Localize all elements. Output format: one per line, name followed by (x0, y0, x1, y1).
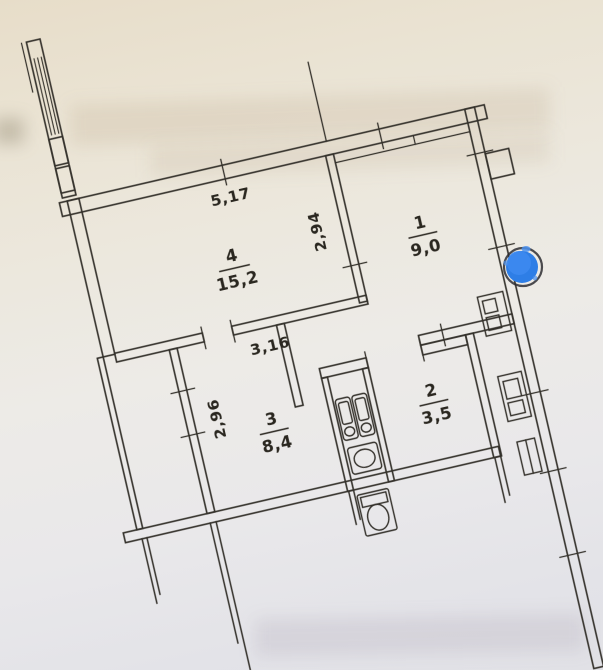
room4-number: 4 (224, 245, 240, 266)
wall-balcony-room3 (169, 348, 215, 513)
wall-pilaster-bump (485, 148, 514, 179)
axis-line-extension (308, 62, 326, 141)
room1-label: 1 9,0 (403, 210, 443, 261)
wall-partition-room4-room1 (326, 154, 368, 303)
wall-niche-left (322, 377, 354, 491)
wall-niche-top (319, 358, 368, 379)
wall-section-top-left (21, 39, 76, 199)
wall-room4-bottom-right (232, 295, 368, 335)
room1-area: 9,0 (409, 235, 443, 260)
marker-speck-top (522, 246, 531, 252)
wall-niche-right (362, 368, 394, 482)
room1-ledge-joint (413, 136, 415, 145)
room3-number: 3 (263, 409, 279, 430)
neighbor-toilet-fixture (357, 488, 398, 536)
wall-top (59, 105, 487, 217)
dim-room4-depth: 2,94 (304, 210, 331, 253)
dim-room3-depth: 2,96 (204, 397, 231, 440)
marker-speck-bottom (533, 276, 538, 281)
marker-highlight (507, 251, 531, 275)
room2-area: 3,5 (420, 403, 454, 428)
blue-marker-annotation (503, 246, 542, 286)
dim-room3-width: 3,16 (248, 333, 291, 360)
room4-label: 4 15,2 (209, 242, 261, 295)
dim-room4-width: 5,17 (209, 184, 252, 211)
room1-number: 1 (412, 212, 428, 233)
wall-room4-bottom-left (115, 333, 205, 362)
wall-room2-right (465, 333, 501, 458)
room1-top-inner-ledge (335, 132, 469, 163)
room2-number: 2 (423, 380, 439, 401)
floor-plan-drawing: 5,17 2,94 3,16 2,96 4 15,2 1 9,0 3 (0, 0, 603, 670)
marker-speck-left (503, 260, 508, 265)
room2-label: 2 3,5 (414, 378, 454, 429)
wall-bottom-outer (123, 446, 500, 542)
room3-label: 3 8,4 (254, 406, 294, 457)
plan-geometry: 5,17 2,94 3,16 2,96 4 15,2 1 9,0 3 (11, 0, 603, 670)
floor-plan-photo: 5,17 2,94 3,16 2,96 4 15,2 1 9,0 3 (0, 0, 603, 670)
joint-ticks (122, 99, 585, 634)
room3-area: 8,4 (260, 432, 294, 457)
bathroom-fixtures (335, 393, 384, 475)
wall-left-room4 (67, 198, 115, 357)
plan-labels: 5,17 2,94 3,16 2,96 4 15,2 1 9,0 3 (158, 145, 480, 476)
wall-balcony-left (97, 357, 142, 530)
